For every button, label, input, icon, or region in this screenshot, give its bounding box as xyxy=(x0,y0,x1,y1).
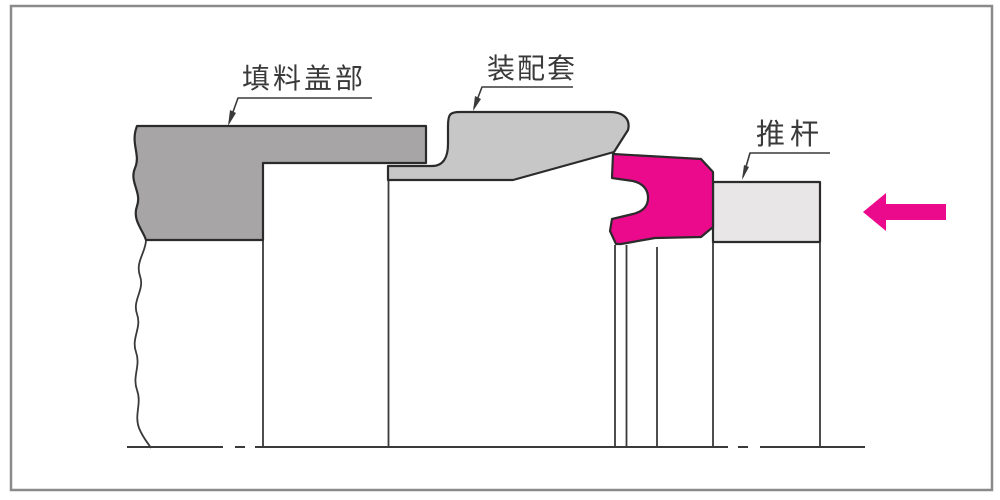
label-assembly-sleeve: 装配套 xyxy=(487,53,577,84)
push-rod-shape xyxy=(713,182,820,242)
label-push-rod: 推杆 xyxy=(756,118,824,151)
seal-assembly-diagram: 填料盖部 装配套 推杆 xyxy=(0,0,1000,500)
label-packing-cover: 填料盖部 xyxy=(242,63,366,94)
diagram-canvas: 填料盖部 装配套 推杆 xyxy=(0,0,1000,500)
